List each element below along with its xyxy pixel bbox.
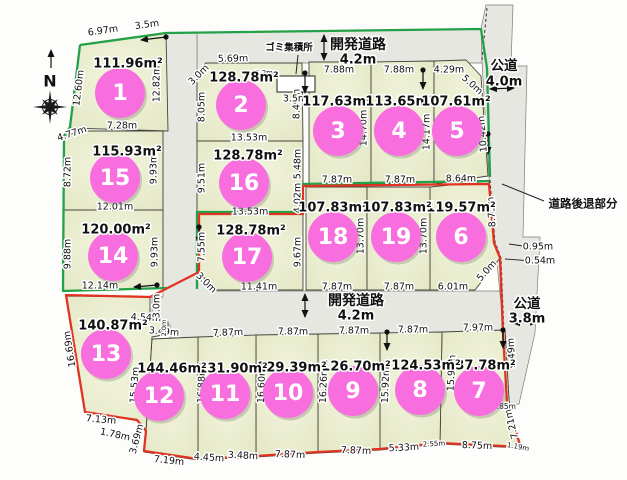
- lot-18-area-label: 107.83m²: [298, 201, 367, 216]
- lot-7-dim: 7.97m: [463, 323, 493, 334]
- lot-11-dim: 3.48m: [228, 450, 259, 463]
- road-setback-label: 道路後退部分: [549, 197, 618, 211]
- lot-4-dim: 7.87m: [385, 175, 415, 186]
- compass-north-letter: N: [43, 72, 56, 91]
- lot-17-dim: 7.55m: [197, 232, 208, 262]
- lot-4-number: 4: [391, 119, 406, 144]
- lot-12-area-label: 144.46m²: [137, 362, 206, 377]
- lot-16-dim: 5.48m: [293, 149, 304, 179]
- lot-7-dim: 8.75m: [462, 440, 493, 452]
- lot-7-number: 7: [471, 379, 486, 404]
- site-plan-page: 6.97m3.5m12.60m12.82m7.28m5.69m3.0m8.05m…: [0, 0, 627, 480]
- lot-13-dim: 3.0m: [152, 294, 163, 318]
- lot-10-dim: 7.87m: [275, 449, 306, 461]
- lot-2-number: 2: [233, 93, 248, 118]
- road-label: 4.2m: [340, 53, 377, 68]
- lot-2-dim: 5.69m: [218, 53, 249, 65]
- lot-19-dim: 7.87m: [384, 282, 414, 293]
- lot-9-dim: 7.87m: [341, 445, 372, 457]
- lot-2-dim: 13.53m: [231, 133, 267, 144]
- lot-13-number: 13: [91, 342, 122, 367]
- road-label: 3.8m: [509, 312, 546, 327]
- lot-11-number: 11: [210, 382, 241, 407]
- lot-9-number: 9: [345, 379, 360, 404]
- lot-11-dim: 7.87m: [213, 327, 244, 339]
- lot-8-dim: 2.55m: [423, 439, 446, 448]
- lot-11-area-label: 131.90m²: [198, 362, 267, 377]
- lot-10-area-label: 129.39m²: [257, 361, 326, 376]
- lot-16-dim: 9.51m: [197, 163, 208, 193]
- lot-9-dim: 7.87m: [339, 326, 369, 337]
- lot-17-area-label: 128.78m²: [216, 224, 285, 239]
- misc-dim: 0.95m: [523, 242, 553, 253]
- road-label: 開発道路: [328, 292, 385, 309]
- lot-8-number: 8: [412, 378, 427, 403]
- lot-14-dim: 9.88m: [63, 239, 74, 269]
- road-label: 4.0m: [486, 75, 523, 90]
- lot-13-area-label: 140.87m²: [78, 319, 147, 334]
- lot-5-dim: 8.64m: [446, 174, 476, 185]
- lot-1-number: 1: [112, 81, 127, 106]
- lot-8-dim: 5.33m: [389, 442, 420, 455]
- lot-13-dim: 2.0m: [160, 320, 168, 337]
- lot-1-dim: 7.28m: [107, 121, 137, 132]
- lot-6-area-label: 119.57m²: [426, 201, 495, 216]
- lot-5-area-label: 107.61m²: [421, 95, 490, 110]
- lot-4-dim: 7.88m: [384, 65, 414, 76]
- lot-19-number: 19: [381, 225, 412, 250]
- lot-15-number: 15: [100, 166, 131, 191]
- lot-2-dim: 8.05m: [197, 92, 208, 122]
- site-plan-svg: 6.97m3.5m12.60m12.82m7.28m5.69m3.0m8.05m…: [0, 0, 627, 480]
- lot-17-number: 17: [232, 245, 263, 270]
- lot-3-area-label: 117.63m²: [302, 95, 371, 110]
- garbage-station-label: ゴミ集積所: [265, 42, 313, 54]
- lot-12-number: 12: [144, 384, 175, 409]
- lot-5-dim: 4.29m: [434, 65, 464, 76]
- lot-11-dim: 4.45m: [193, 451, 224, 464]
- road-label: 4.2m: [338, 309, 375, 324]
- lot-15-area-label: 115.93m²: [92, 145, 161, 160]
- lot-15-dim: 8.72m: [63, 157, 74, 187]
- lot-16-area-label: 128.78m²: [213, 149, 282, 164]
- lot-14-area-label: 120.00m²: [81, 223, 150, 238]
- road-label: 公道: [491, 57, 519, 74]
- road-label: 開発道路: [330, 36, 387, 53]
- lot-8-area-label: 124.53m²: [391, 359, 460, 374]
- lot-8-dim: 7.87m: [398, 325, 428, 336]
- lot-6-number: 6: [453, 225, 468, 250]
- lot-19-area-label: 107.83m²: [362, 201, 431, 216]
- lot-14-dim: 9.93m: [150, 237, 161, 267]
- lot-18-dim: 7.87m: [322, 282, 352, 293]
- lot-16-number: 16: [229, 171, 260, 196]
- lot-14-number: 14: [98, 244, 129, 269]
- lot-2-area-label: 128.78m²: [209, 71, 278, 86]
- lot-10-number: 10: [273, 381, 304, 406]
- misc-dim: 0.54m: [525, 256, 555, 267]
- lot-6-dim: 6.01m: [438, 282, 468, 293]
- lot-10-dim: 7.87m: [278, 327, 308, 338]
- lot-1-area-label: 111.96m²: [93, 57, 162, 72]
- lot-17-dim: 9.67m: [293, 237, 304, 267]
- lot-3-number: 3: [330, 119, 345, 144]
- lot-18-number: 18: [318, 225, 349, 250]
- lot-3-dim: 7.87m: [322, 175, 352, 186]
- road-label: 公道: [514, 295, 542, 312]
- lot-9-area-label: 126.70m²: [321, 360, 390, 375]
- lot-5-number: 5: [449, 119, 464, 144]
